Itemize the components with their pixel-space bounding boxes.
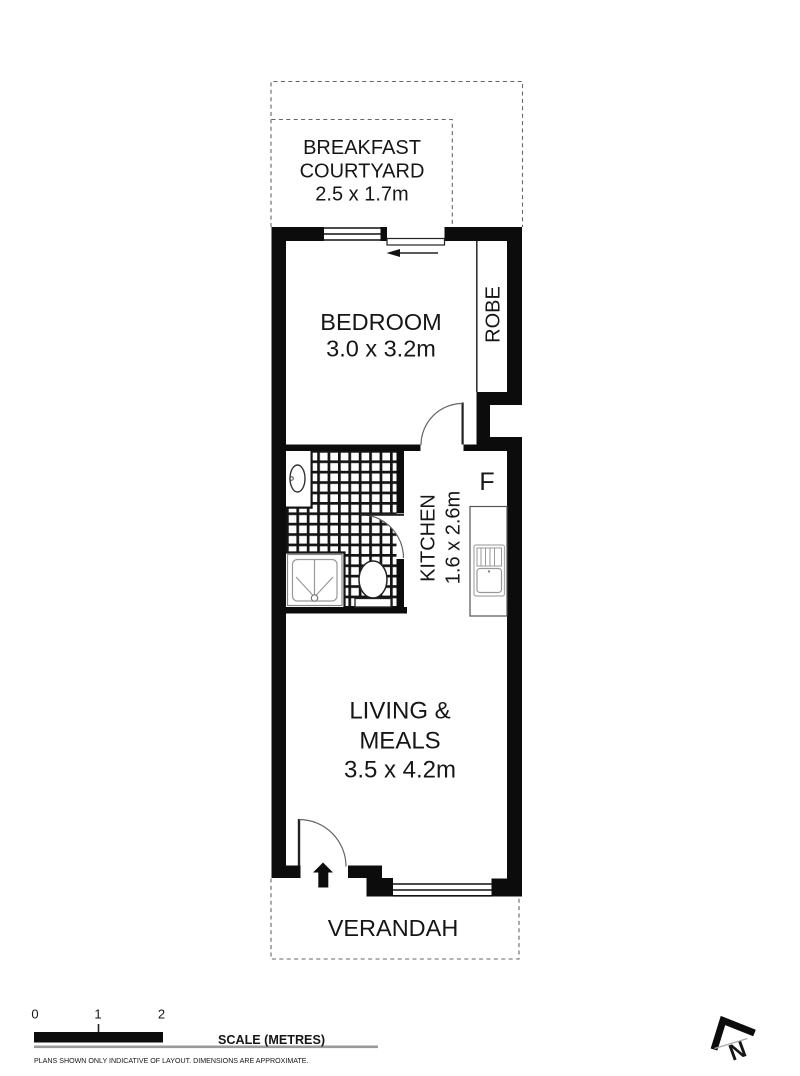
svg-text:VERANDAH: VERANDAH [328, 915, 459, 941]
svg-text:3.0 x 3.2m: 3.0 x 3.2m [326, 336, 436, 362]
svg-text:2: 2 [158, 1007, 165, 1022]
svg-text:KITCHEN: KITCHEN [418, 494, 440, 582]
svg-text:2.5 x 1.7m: 2.5 x 1.7m [315, 184, 408, 206]
svg-text:3.5 x 4.2m: 3.5 x 4.2m [344, 757, 456, 784]
svg-text:MEALS: MEALS [359, 728, 440, 755]
svg-text:1: 1 [94, 1007, 101, 1022]
svg-text:SCALE (METRES): SCALE (METRES) [218, 1033, 325, 1047]
svg-text:F: F [479, 468, 494, 496]
svg-text:COURTYARD: COURTYARD [300, 161, 425, 183]
svg-text:PLANS SHOWN ONLY INDICATIVE OF: PLANS SHOWN ONLY INDICATIVE OF LAYOUT. D… [34, 1057, 309, 1065]
svg-text:BEDROOM: BEDROOM [320, 309, 441, 335]
svg-text:1.6 x 2.6m: 1.6 x 2.6m [443, 491, 465, 584]
svg-text:BREAKFAST: BREAKFAST [303, 137, 421, 159]
svg-text:ROBE: ROBE [483, 286, 505, 343]
svg-text:LIVING &: LIVING & [349, 698, 450, 725]
svg-text:0: 0 [31, 1007, 38, 1022]
